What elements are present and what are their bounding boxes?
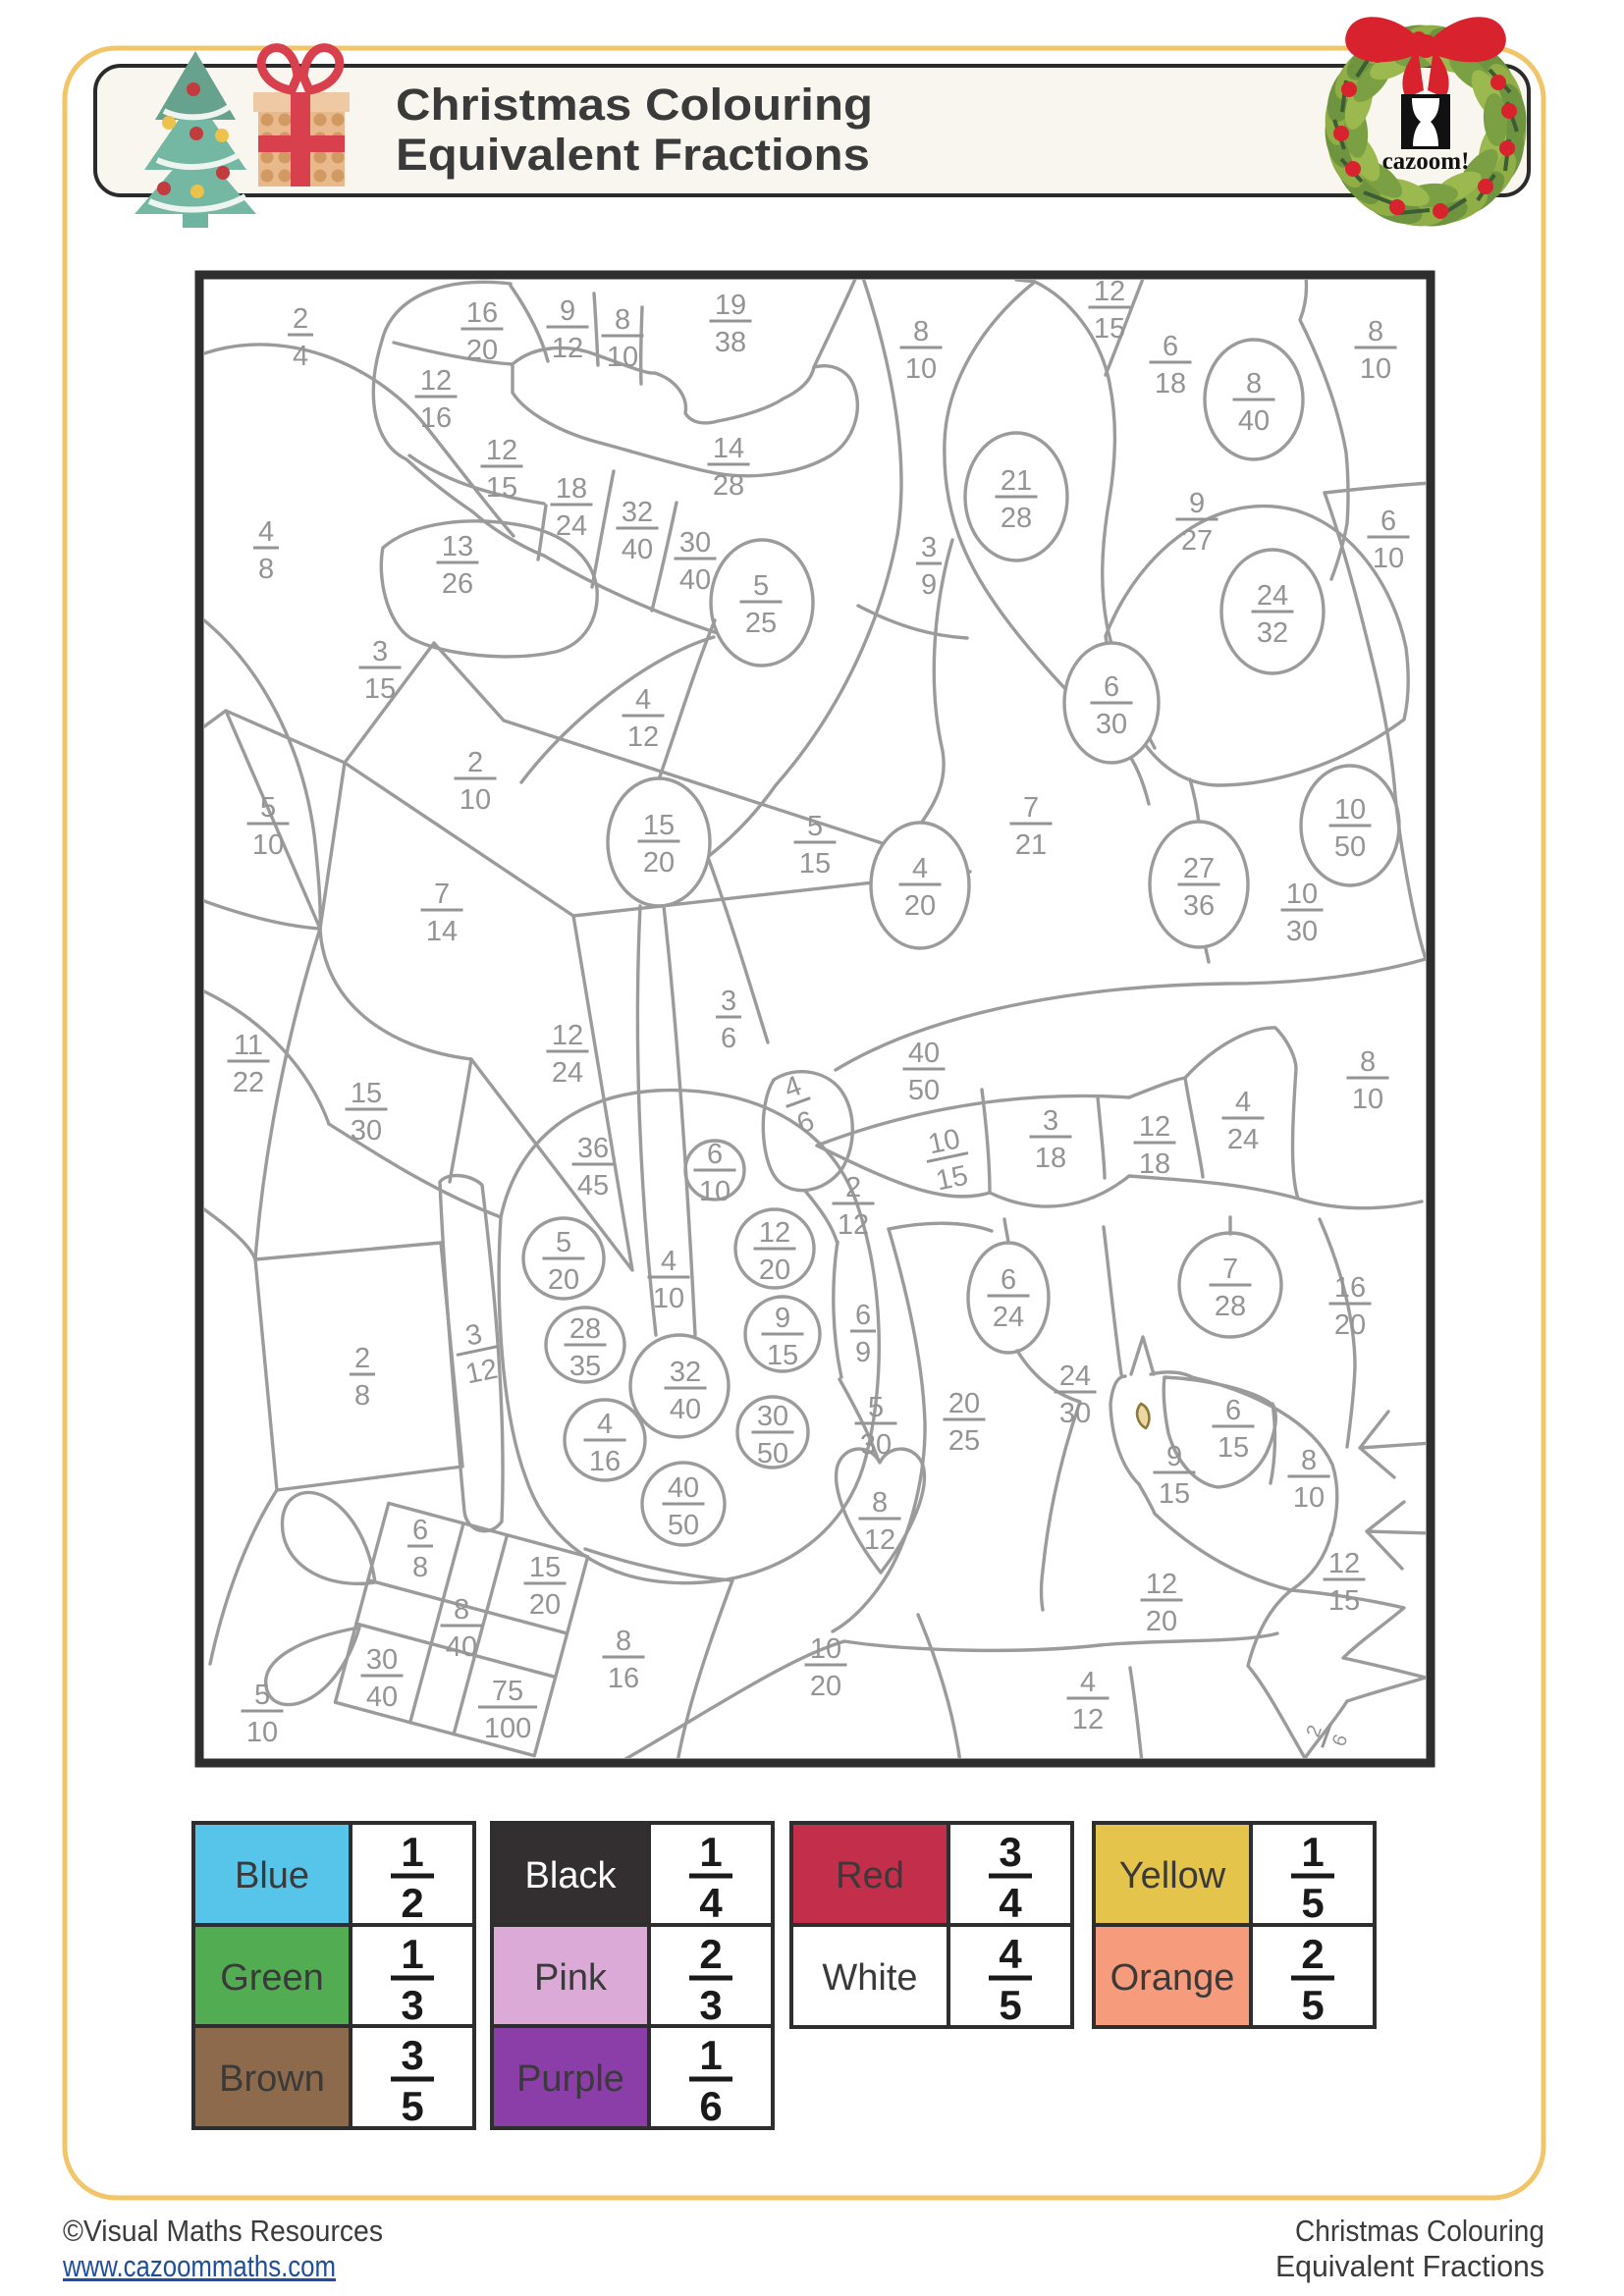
svg-text:2: 2 [1301,1931,1324,1977]
svg-text:12: 12 [462,1354,500,1391]
svg-text:8: 8 [872,1487,888,1519]
svg-text:16: 16 [589,1446,621,1477]
svg-text:9: 9 [775,1303,790,1334]
svg-text:40: 40 [366,1682,398,1713]
svg-text:15: 15 [529,1552,561,1583]
svg-text:10: 10 [1286,879,1318,910]
svg-text:30: 30 [860,1429,892,1461]
svg-text:12: 12 [486,435,517,466]
svg-text:6: 6 [1380,506,1396,537]
svg-text:Christmas Colouring: Christmas Colouring [1295,2214,1544,2248]
svg-text:12: 12 [838,1209,869,1241]
svg-text:5: 5 [753,570,769,602]
svg-text:Red: Red [836,1855,904,1896]
svg-text:5: 5 [254,1680,270,1711]
svg-text:1: 1 [1301,1829,1324,1875]
svg-text:Black: Black [525,1855,618,1896]
svg-text:9: 9 [855,1337,871,1368]
svg-text:15: 15 [1159,1478,1190,1510]
svg-text:3: 3 [721,986,736,1017]
svg-text:6: 6 [707,1139,723,1170]
svg-text:20: 20 [1334,1309,1366,1341]
svg-text:10: 10 [1373,543,1404,574]
svg-text:4: 4 [1080,1667,1096,1698]
svg-text:8: 8 [1301,1445,1317,1476]
svg-text:12: 12 [1072,1704,1104,1735]
svg-text:9: 9 [921,569,937,601]
svg-text:6: 6 [855,1300,871,1331]
svg-text:4: 4 [635,684,651,716]
svg-text:38: 38 [715,327,746,358]
svg-text:15: 15 [351,1078,382,1109]
svg-text:3: 3 [1043,1105,1058,1137]
svg-text:27: 27 [1183,853,1215,884]
svg-text:11: 11 [234,1030,263,1061]
svg-text:40: 40 [908,1038,940,1069]
svg-text:12: 12 [1139,1111,1170,1143]
svg-text:15: 15 [643,810,675,841]
svg-text:20: 20 [466,335,498,366]
svg-text:3: 3 [999,1829,1021,1875]
svg-text:1: 1 [401,1931,423,1977]
svg-text:18: 18 [1155,368,1186,400]
svg-text:4: 4 [1235,1087,1251,1118]
svg-text:27: 27 [1181,525,1213,557]
svg-text:20: 20 [810,1671,841,1702]
svg-text:20: 20 [529,1589,561,1621]
svg-text:1: 1 [699,2032,722,2078]
svg-text:16: 16 [1334,1272,1366,1304]
svg-text:24: 24 [552,1057,583,1089]
svg-text:14: 14 [713,433,744,464]
svg-text:12: 12 [864,1524,895,1556]
svg-text:8: 8 [1246,368,1262,400]
svg-text:32: 32 [1257,617,1288,649]
svg-text:2: 2 [845,1172,861,1203]
svg-text:50: 50 [908,1075,940,1106]
svg-text:Orange: Orange [1110,1957,1235,1999]
svg-text:36: 36 [577,1133,609,1164]
svg-text:18: 18 [556,473,587,505]
svg-text:40: 40 [446,1631,477,1663]
svg-text:6: 6 [1163,331,1178,362]
svg-text:75: 75 [492,1676,523,1707]
svg-text:7: 7 [434,879,450,910]
svg-text:24: 24 [1227,1124,1259,1155]
svg-text:24: 24 [1257,580,1288,612]
svg-text:www.cazoommaths.com: www.cazoommaths.com [62,2249,336,2283]
svg-text:40: 40 [668,1472,699,1504]
svg-text:12: 12 [552,333,583,364]
svg-text:24: 24 [1059,1361,1091,1392]
svg-text:40: 40 [1238,405,1270,437]
svg-text:45: 45 [577,1170,609,1201]
svg-text:32: 32 [670,1357,701,1388]
svg-text:8: 8 [354,1380,370,1412]
svg-text:5: 5 [868,1392,884,1423]
svg-text:8: 8 [258,554,274,585]
svg-text:12: 12 [759,1217,790,1249]
svg-text:5: 5 [260,792,276,824]
svg-text:Equivalent Fractions: Equivalent Fractions [396,130,870,180]
svg-text:cazoom!: cazoom! [1382,148,1470,175]
svg-text:10: 10 [246,1717,278,1748]
svg-text:25: 25 [745,608,777,639]
svg-text:15: 15 [486,472,517,504]
svg-text:15: 15 [767,1340,798,1371]
svg-text:6: 6 [699,2083,722,2129]
svg-text:16: 16 [608,1663,639,1694]
svg-text:10: 10 [1360,353,1391,385]
svg-text:10: 10 [1352,1084,1383,1115]
svg-text:8: 8 [615,304,630,336]
svg-text:18: 18 [1035,1143,1066,1174]
svg-text:9: 9 [1189,488,1205,519]
svg-text:8: 8 [1368,316,1383,347]
svg-text:50: 50 [1334,831,1366,863]
svg-text:4: 4 [258,516,274,548]
svg-text:30: 30 [1059,1398,1091,1429]
svg-text:4: 4 [999,1931,1022,1977]
svg-text:40: 40 [679,564,711,596]
svg-text:Equivalent Fractions: Equivalent Fractions [1275,2249,1544,2283]
svg-text:White: White [822,1957,917,1999]
svg-text:12: 12 [1146,1569,1177,1600]
svg-text:25: 25 [948,1425,980,1457]
svg-text:12: 12 [627,721,659,753]
svg-text:4: 4 [661,1246,677,1277]
svg-text:10: 10 [460,784,491,816]
svg-text:14: 14 [426,916,458,947]
svg-text:12: 12 [1328,1548,1360,1579]
svg-text:20: 20 [904,890,936,922]
svg-text:18: 18 [1139,1148,1170,1180]
svg-text:5: 5 [401,2083,423,2129]
svg-text:22: 22 [233,1067,264,1098]
svg-text:24: 24 [993,1302,1024,1333]
svg-text:15: 15 [1094,313,1125,345]
svg-text:28: 28 [1215,1291,1246,1322]
svg-text:5: 5 [807,811,823,842]
svg-text:3: 3 [921,532,937,563]
svg-text:2: 2 [354,1343,370,1374]
svg-text:6: 6 [1104,671,1119,703]
svg-text:15: 15 [364,673,396,705]
svg-text:9: 9 [1166,1441,1182,1472]
svg-text:12: 12 [552,1020,583,1051]
svg-text:50: 50 [668,1510,699,1541]
svg-text:19: 19 [715,290,746,321]
svg-text:Brown: Brown [219,2058,325,2100]
svg-text:30: 30 [1286,916,1318,947]
svg-text:21: 21 [1015,829,1047,861]
svg-text:40: 40 [622,534,653,565]
svg-text:8: 8 [616,1626,631,1657]
svg-text:8: 8 [454,1594,469,1626]
svg-text:2: 2 [699,1931,722,1977]
svg-text:20: 20 [948,1388,980,1419]
svg-text:Pink: Pink [534,1957,608,1999]
svg-text:12: 12 [1094,276,1125,307]
svg-text:20: 20 [643,847,675,879]
svg-text:9: 9 [560,295,575,327]
svg-text:50: 50 [757,1438,788,1469]
svg-text:Green: Green [220,1957,324,1999]
svg-text:3: 3 [372,636,388,667]
svg-text:1: 1 [699,1829,722,1875]
svg-text:8: 8 [1360,1046,1376,1078]
svg-text:10: 10 [905,353,937,385]
svg-text:12: 12 [420,365,452,397]
svg-text:24: 24 [556,510,587,542]
svg-text:32: 32 [622,497,653,528]
svg-text:6: 6 [412,1515,428,1546]
svg-text:36: 36 [1183,890,1215,922]
svg-text:7: 7 [1023,792,1039,824]
svg-text:30: 30 [757,1401,788,1432]
svg-text:10: 10 [699,1176,731,1207]
svg-text:15: 15 [1218,1432,1249,1464]
svg-text:4: 4 [699,1880,723,1926]
svg-text:8: 8 [412,1552,428,1583]
svg-text:3: 3 [401,1982,423,2028]
svg-text:20: 20 [1146,1606,1177,1637]
svg-text:6: 6 [721,1023,736,1054]
svg-text:15: 15 [933,1160,970,1198]
svg-text:10: 10 [653,1283,684,1314]
svg-text:10: 10 [1334,794,1366,826]
svg-text:20: 20 [759,1255,790,1286]
svg-text:5: 5 [1301,1880,1324,1926]
svg-text:4: 4 [999,1880,1022,1926]
svg-text:Christmas Colouring: Christmas Colouring [396,80,873,130]
svg-text:28: 28 [1001,503,1032,534]
svg-text:10: 10 [252,829,284,861]
svg-text:30: 30 [351,1115,382,1147]
svg-text:5: 5 [556,1227,571,1258]
svg-text:6: 6 [1225,1395,1241,1426]
svg-text:10: 10 [810,1633,841,1665]
svg-text:26: 26 [442,568,473,600]
svg-text:16: 16 [466,297,498,329]
svg-text:5: 5 [1301,1982,1324,2028]
svg-text:28: 28 [713,470,744,502]
svg-text:30: 30 [366,1644,398,1676]
svg-text:30: 30 [1096,709,1127,740]
svg-text:40: 40 [670,1394,701,1425]
svg-text:2: 2 [467,747,483,778]
svg-text:30: 30 [679,527,711,559]
svg-text:28: 28 [569,1313,601,1345]
svg-text:Yellow: Yellow [1119,1855,1226,1896]
svg-text:2: 2 [401,1880,423,1926]
svg-text:13: 13 [442,531,473,562]
svg-text:Blue: Blue [235,1855,309,1896]
svg-text:21: 21 [1001,465,1032,497]
svg-text:4: 4 [597,1409,613,1440]
svg-text:15: 15 [1328,1585,1360,1617]
svg-text:20: 20 [548,1264,579,1296]
svg-text:10: 10 [607,342,638,373]
svg-text:Purple: Purple [516,2058,624,2100]
svg-text:6: 6 [1001,1264,1016,1296]
svg-text:1: 1 [401,1829,423,1875]
svg-text:©Visual Maths Resources: ©Visual Maths Resources [63,2214,383,2248]
svg-text:100: 100 [484,1713,531,1744]
svg-text:16: 16 [420,402,452,434]
svg-text:3: 3 [699,1982,722,2028]
svg-text:7: 7 [1222,1254,1238,1285]
svg-text:5: 5 [999,1982,1021,2028]
svg-text:15: 15 [799,848,831,880]
svg-text:3: 3 [401,2032,423,2078]
svg-text:35: 35 [569,1351,601,1382]
svg-text:8: 8 [913,316,929,347]
svg-text:10: 10 [1293,1482,1325,1514]
svg-text:2: 2 [293,303,308,335]
svg-text:4: 4 [912,853,928,884]
svg-text:4: 4 [293,341,308,372]
